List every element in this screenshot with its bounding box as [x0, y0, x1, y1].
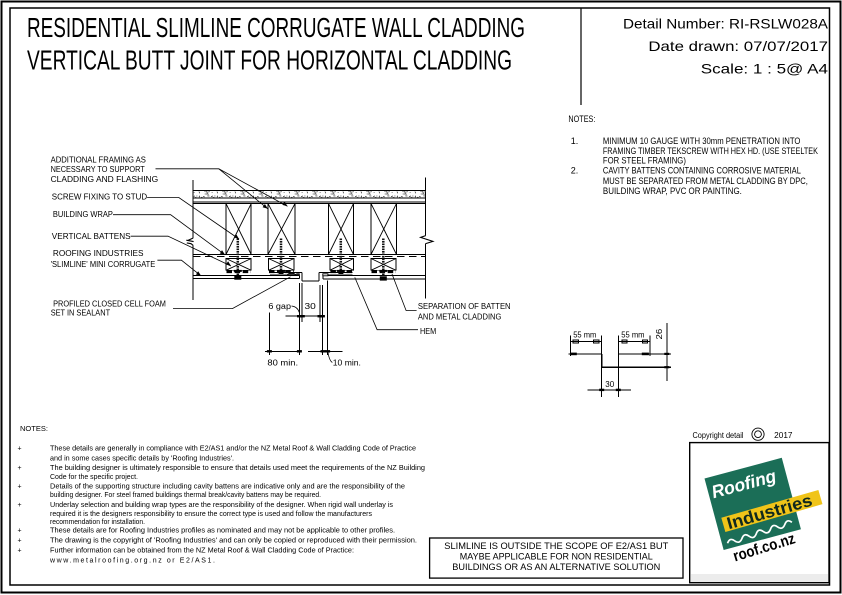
svg-text:1.: 1. — [571, 136, 579, 146]
svg-text:CLADDING AND FLASHING: CLADDING AND FLASHING — [51, 175, 159, 184]
svg-text:10 min.: 10 min. — [333, 359, 361, 368]
svg-text:30: 30 — [605, 380, 614, 389]
svg-text:Code for the specific project.: Code for the specific project. — [50, 474, 138, 481]
svg-text:SEPARATION OF BATTEN: SEPARATION OF BATTEN — [418, 302, 511, 311]
svg-text:+: + — [18, 502, 22, 509]
svg-text:CAVITY BATTENS CONTAINING CORR: CAVITY BATTENS CONTAINING CORROSIVE MATE… — [603, 165, 801, 175]
svg-text:recommendation for installatio: recommendation for installation. — [50, 519, 145, 526]
svg-text:FOR STEEL FRAMING): FOR STEEL FRAMING) — [603, 155, 686, 165]
svg-text:required it is the designers r: required it is the designers responsibil… — [50, 511, 372, 518]
svg-text:SET IN SEALANT: SET IN SEALANT — [51, 309, 110, 318]
svg-text:Underlay selection and buildin: Underlay selection and building wrap typ… — [50, 502, 394, 509]
svg-text:2.: 2. — [571, 165, 579, 175]
svg-text:BUILDINGS OR AS AN ALTERNATIVE: BUILDINGS OR AS AN ALTERNATIVE SOLUTION — [452, 562, 660, 572]
svg-text:VERTICAL BATTENS: VERTICAL BATTENS — [52, 232, 131, 241]
svg-text:NECESSARY TO SUPPORT: NECESSARY TO SUPPORT — [51, 165, 145, 174]
svg-text:+: + — [18, 484, 22, 491]
svg-text:+: + — [18, 538, 22, 545]
svg-text:2017: 2017 — [774, 431, 793, 440]
svg-text:Scale: 1 : 5@ A4: Scale: 1 : 5@ A4 — [701, 61, 828, 77]
svg-text:30: 30 — [305, 302, 317, 311]
svg-text:Copyright detail: Copyright detail — [693, 431, 744, 440]
svg-text:The building designer is ultim: The building designer is ultimately resp… — [50, 465, 425, 472]
svg-text:Details of the supporting stru: Details of the supporting structure incl… — [50, 484, 405, 491]
svg-text:55 mm: 55 mm — [573, 331, 596, 340]
svg-text:These details are generally in: These details are generally in complianc… — [50, 446, 416, 453]
svg-text:SLIMLINE IS OUTSIDE THE SCOPE: SLIMLINE IS OUTSIDE THE SCOPE OF E2/AS1 … — [444, 541, 668, 551]
svg-text:+: + — [18, 548, 22, 555]
svg-text:55 mm: 55 mm — [621, 331, 645, 340]
svg-text:NOTES:: NOTES: — [20, 424, 48, 433]
svg-text:MINIMUM 10 GAUGE WITH 30mm PEN: MINIMUM 10 GAUGE WITH 30mm PENETRATION I… — [603, 136, 801, 146]
svg-text:+: + — [18, 446, 22, 453]
svg-text:and in some cases specific det: and in some cases specific details by 'R… — [50, 455, 234, 462]
svg-text:ROOFING INDUSTRIES: ROOFING INDUSTRIES — [53, 249, 144, 258]
svg-text:ADDITIONAL FRAMING AS: ADDITIONAL FRAMING AS — [51, 155, 146, 164]
svg-text:6 gap: 6 gap — [268, 302, 291, 311]
svg-text:PROFILED CLOSED CELL FOAM: PROFILED CLOSED CELL FOAM — [53, 300, 166, 309]
svg-text:HEM: HEM — [420, 327, 437, 336]
svg-text:MAYBE APPLICABLE FOR NON RESID: MAYBE APPLICABLE FOR NON RESIDENTIAL — [460, 552, 653, 562]
svg-text:NOTES:: NOTES: — [568, 114, 595, 124]
svg-text:RESIDENTIAL SLIMLINE CORRUGATE: RESIDENTIAL SLIMLINE CORRUGATE WALL CLAD… — [27, 12, 525, 43]
svg-text:SCREW FIXING TO STUD: SCREW FIXING TO STUD — [52, 193, 148, 202]
svg-text:These details are for Roofing: These details are for Roofing Industries… — [50, 528, 395, 535]
svg-text:AND METAL CLADDING: AND METAL CLADDING — [418, 312, 502, 321]
svg-text:+: + — [18, 465, 22, 472]
svg-text:The drawing is the copyright o: The drawing is the copyright of 'Roofing… — [50, 538, 417, 545]
svg-text:26: 26 — [655, 328, 664, 339]
svg-text:Date drawn: 07/07/2017: Date drawn: 07/07/2017 — [648, 38, 828, 54]
svg-text:+: + — [18, 528, 22, 535]
svg-text:BUILDING WRAP, PVC OR PAINTING: BUILDING WRAP, PVC OR PAINTING. — [603, 186, 742, 196]
svg-text:MUST BE SEPARATED FROM METAL C: MUST BE SEPARATED FROM METAL CLADDING BY… — [603, 176, 808, 186]
svg-text:'SLIMLINE' MINI CORRUGATE: 'SLIMLINE' MINI CORRUGATE — [51, 260, 156, 269]
svg-text:Detail Number: RI-RSLW028A: Detail Number: RI-RSLW028A — [623, 16, 829, 32]
svg-text:BUILDING WRAP: BUILDING WRAP — [53, 210, 113, 219]
svg-text:Further information can be obt: Further information can be obtained from… — [50, 548, 354, 555]
svg-text:building designer. For steel: building designer. For steel framed buil… — [50, 492, 321, 499]
svg-text:80 min.: 80 min. — [267, 359, 298, 368]
svg-text:VERTICAL BUTT JOINT FOR HORIZO: VERTICAL BUTT JOINT FOR HORIZONTAL CLADD… — [27, 45, 512, 76]
